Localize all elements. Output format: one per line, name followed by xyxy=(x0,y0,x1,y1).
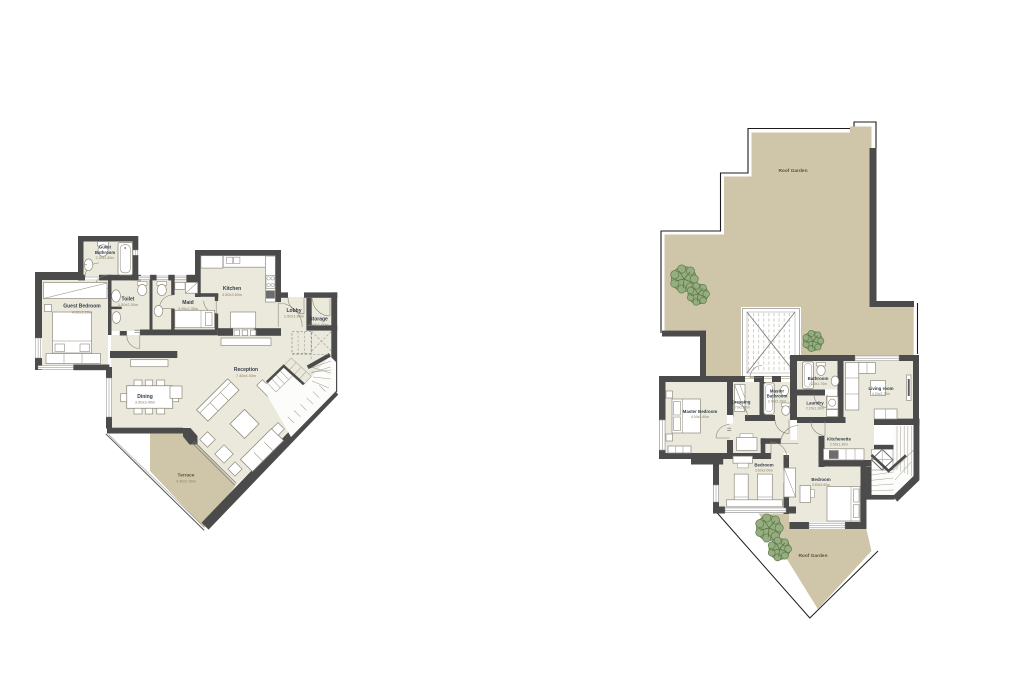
svg-text:Reception: Reception xyxy=(234,367,258,373)
svg-text:3.50x3.60m: 3.50x3.60m xyxy=(222,292,242,297)
svg-text:Bathroom: Bathroom xyxy=(808,376,829,381)
svg-text:Laundry: Laundry xyxy=(806,401,824,406)
svg-text:Dressing: Dressing xyxy=(732,400,751,405)
svg-text:Bedroom: Bedroom xyxy=(811,477,830,482)
svg-text:Guest Bedroom: Guest Bedroom xyxy=(63,304,101,310)
svg-text:Kitchen: Kitchen xyxy=(223,286,241,292)
svg-text:4.00x3.60m: 4.00x3.60m xyxy=(691,415,709,419)
svg-text:Roof Garden: Roof Garden xyxy=(798,553,827,559)
svg-text:1.50x1.60m: 1.50x1.60m xyxy=(284,314,304,319)
svg-text:Bedroom: Bedroom xyxy=(754,463,773,468)
svg-text:4.30x2.30m: 4.30x2.30m xyxy=(176,478,196,483)
svg-text:3.60x3.00m: 3.60x3.00m xyxy=(755,469,773,473)
svg-text:Living room: Living room xyxy=(868,386,893,391)
svg-text:4.00x3.70m: 4.00x3.70m xyxy=(872,392,890,396)
svg-text:1.70x2.00m: 1.70x2.00m xyxy=(732,406,750,410)
svg-text:Roof Garden: Roof Garden xyxy=(778,168,807,174)
svg-text:2.20x1.30m: 2.20x1.30m xyxy=(806,407,824,411)
svg-text:4.00x3.20m: 4.00x3.20m xyxy=(72,310,92,315)
svg-text:2.40x2.20m: 2.40x2.20m xyxy=(768,400,786,404)
svg-text:1.50x2.30m: 1.50x2.30m xyxy=(118,302,138,307)
svg-text:Bathroom: Bathroom xyxy=(95,250,115,255)
svg-text:Master Bedroom: Master Bedroom xyxy=(683,409,718,414)
svg-text:2.30x1.80m: 2.30x1.80m xyxy=(96,256,115,260)
svg-text:Guest: Guest xyxy=(99,245,112,250)
svg-text:3.60x3.60m: 3.60x3.60m xyxy=(812,483,830,487)
svg-text:3.05x2.35m: 3.05x2.35m xyxy=(178,306,198,311)
svg-text:7.40x4.40m: 7.40x4.40m xyxy=(236,373,256,378)
svg-text:3.50x3.40m: 3.50x3.40m xyxy=(135,400,155,405)
svg-text:Maid: Maid xyxy=(182,300,193,306)
svg-text:Bathroom: Bathroom xyxy=(767,394,788,399)
svg-text:Kitchenette: Kitchenette xyxy=(827,437,851,442)
svg-text:1.40x1.00m: 1.40x1.00m xyxy=(308,322,328,327)
svg-text:2.50x1.30m: 2.50x1.30m xyxy=(830,443,848,447)
svg-text:2.20x1.70m: 2.20x1.70m xyxy=(809,382,827,386)
